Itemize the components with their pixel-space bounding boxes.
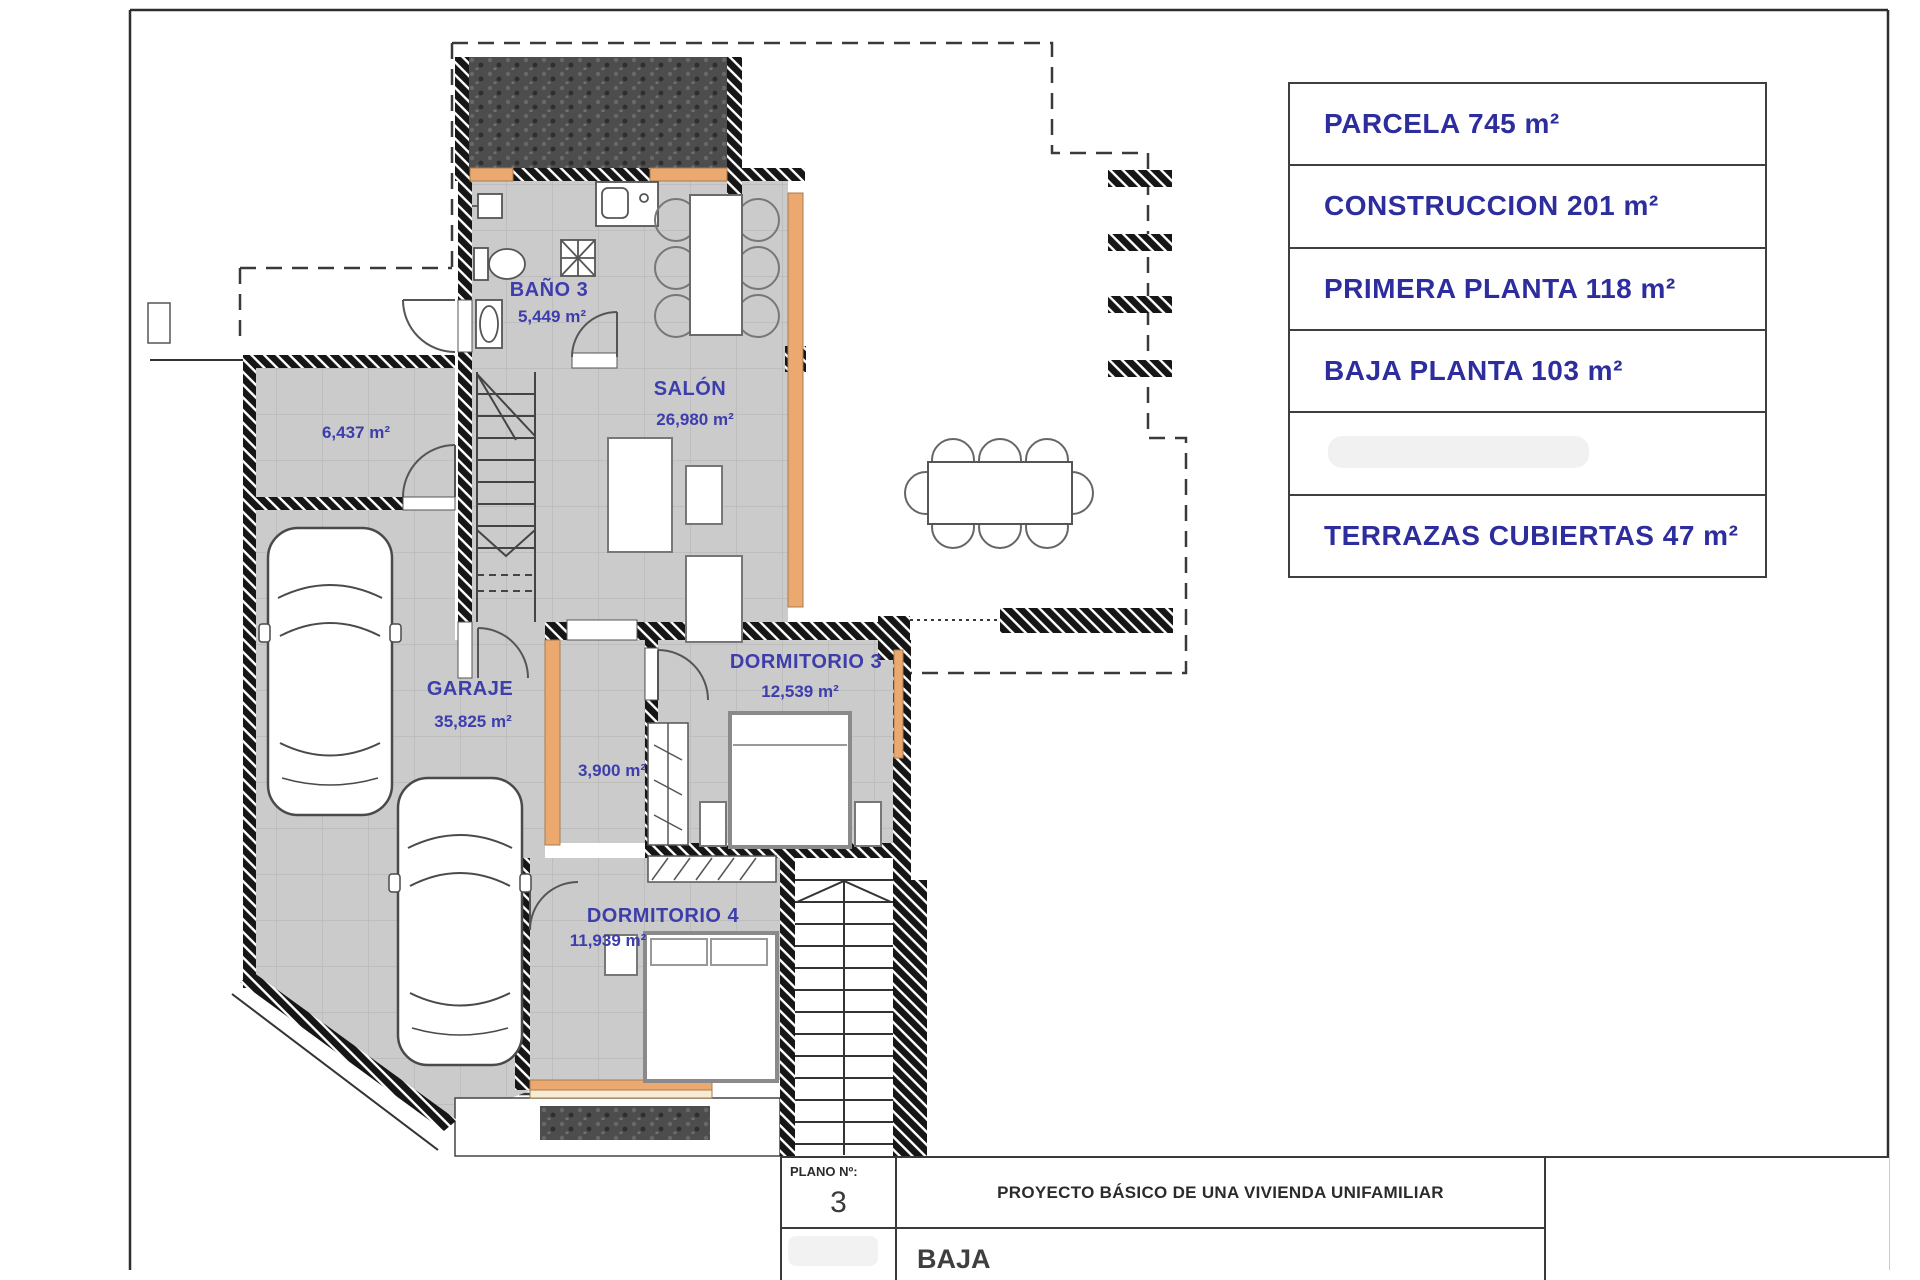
car-1: [259, 528, 401, 815]
plano-number-value: 3: [782, 1186, 895, 1220]
room-label-dorm4: DORMITORIO 4: [587, 905, 740, 927]
room-area-bano3: 5,449 m²: [518, 307, 586, 326]
legend-row-terrazas: TERRAZAS CUBIERTAS 47 m²: [1290, 496, 1765, 576]
erased-stamp-smudge: [788, 1236, 878, 1266]
floor-name: BAJA: [917, 1244, 991, 1275]
legend-row-baja-planta: BAJA PLANTA 103 m²: [1290, 331, 1765, 413]
exterior-staircase: [795, 858, 893, 1158]
dorm3-wardrobe: [648, 723, 688, 845]
title-block: PLANO Nº: 3 PROYECTO BÁSICO DE UNA VIVIE…: [780, 1156, 1889, 1280]
room-area-pasillo: 3,900 m²: [578, 761, 646, 780]
kitchen-sink: [596, 182, 658, 226]
title-block-divider-2: [1544, 1158, 1546, 1280]
title-block-divider-h: [782, 1227, 1546, 1229]
plano-number-label: PLANO Nº:: [790, 1164, 858, 1179]
room-area-salon: 26,980 m²: [656, 410, 734, 429]
car-2: [389, 778, 531, 1065]
legend-row-blank: [1290, 413, 1765, 495]
areas-legend-table: PARCELA 745 m² CONSTRUCCION 201 m² PRIME…: [1288, 82, 1767, 578]
top-terrace-paving: [468, 57, 740, 168]
legend-row-parcela: PARCELA 745 m²: [1290, 84, 1765, 166]
erased-text-smudge: [1328, 436, 1589, 468]
room-label-bano3: BAÑO 3: [510, 278, 589, 301]
legend-row-construccion: CONSTRUCCION 201 m²: [1290, 166, 1765, 248]
room-area-dorm4: 11,939 m²: [570, 931, 647, 950]
room-area-dorm3: 12,539 m²: [761, 682, 839, 701]
room-label-salon: SALÓN: [654, 376, 727, 400]
exterior-pillar: [148, 303, 170, 343]
room-area-garaje: 35,825 m²: [434, 712, 512, 731]
room-label-garaje: GARAJE: [427, 678, 513, 700]
fan-icon: [561, 240, 595, 276]
drawing-sheet: BAÑO 3 5,449 m² SALÓN 26,980 m² 6,437 m²…: [0, 0, 1920, 1280]
project-title: PROYECTO BÁSICO DE UNA VIVIENDA UNIFAMIL…: [897, 1158, 1544, 1227]
legend-row-primera-planta: PRIMERA PLANTA 118 m²: [1290, 249, 1765, 331]
terrace-dining-set: [905, 439, 1093, 548]
room-area-porch: 6,437 m²: [322, 423, 390, 442]
bottom-terrace-paving: [540, 1106, 710, 1140]
room-label-dorm3: DORMITORIO 3: [730, 651, 882, 673]
dorm4-wardrobe: [648, 856, 776, 882]
